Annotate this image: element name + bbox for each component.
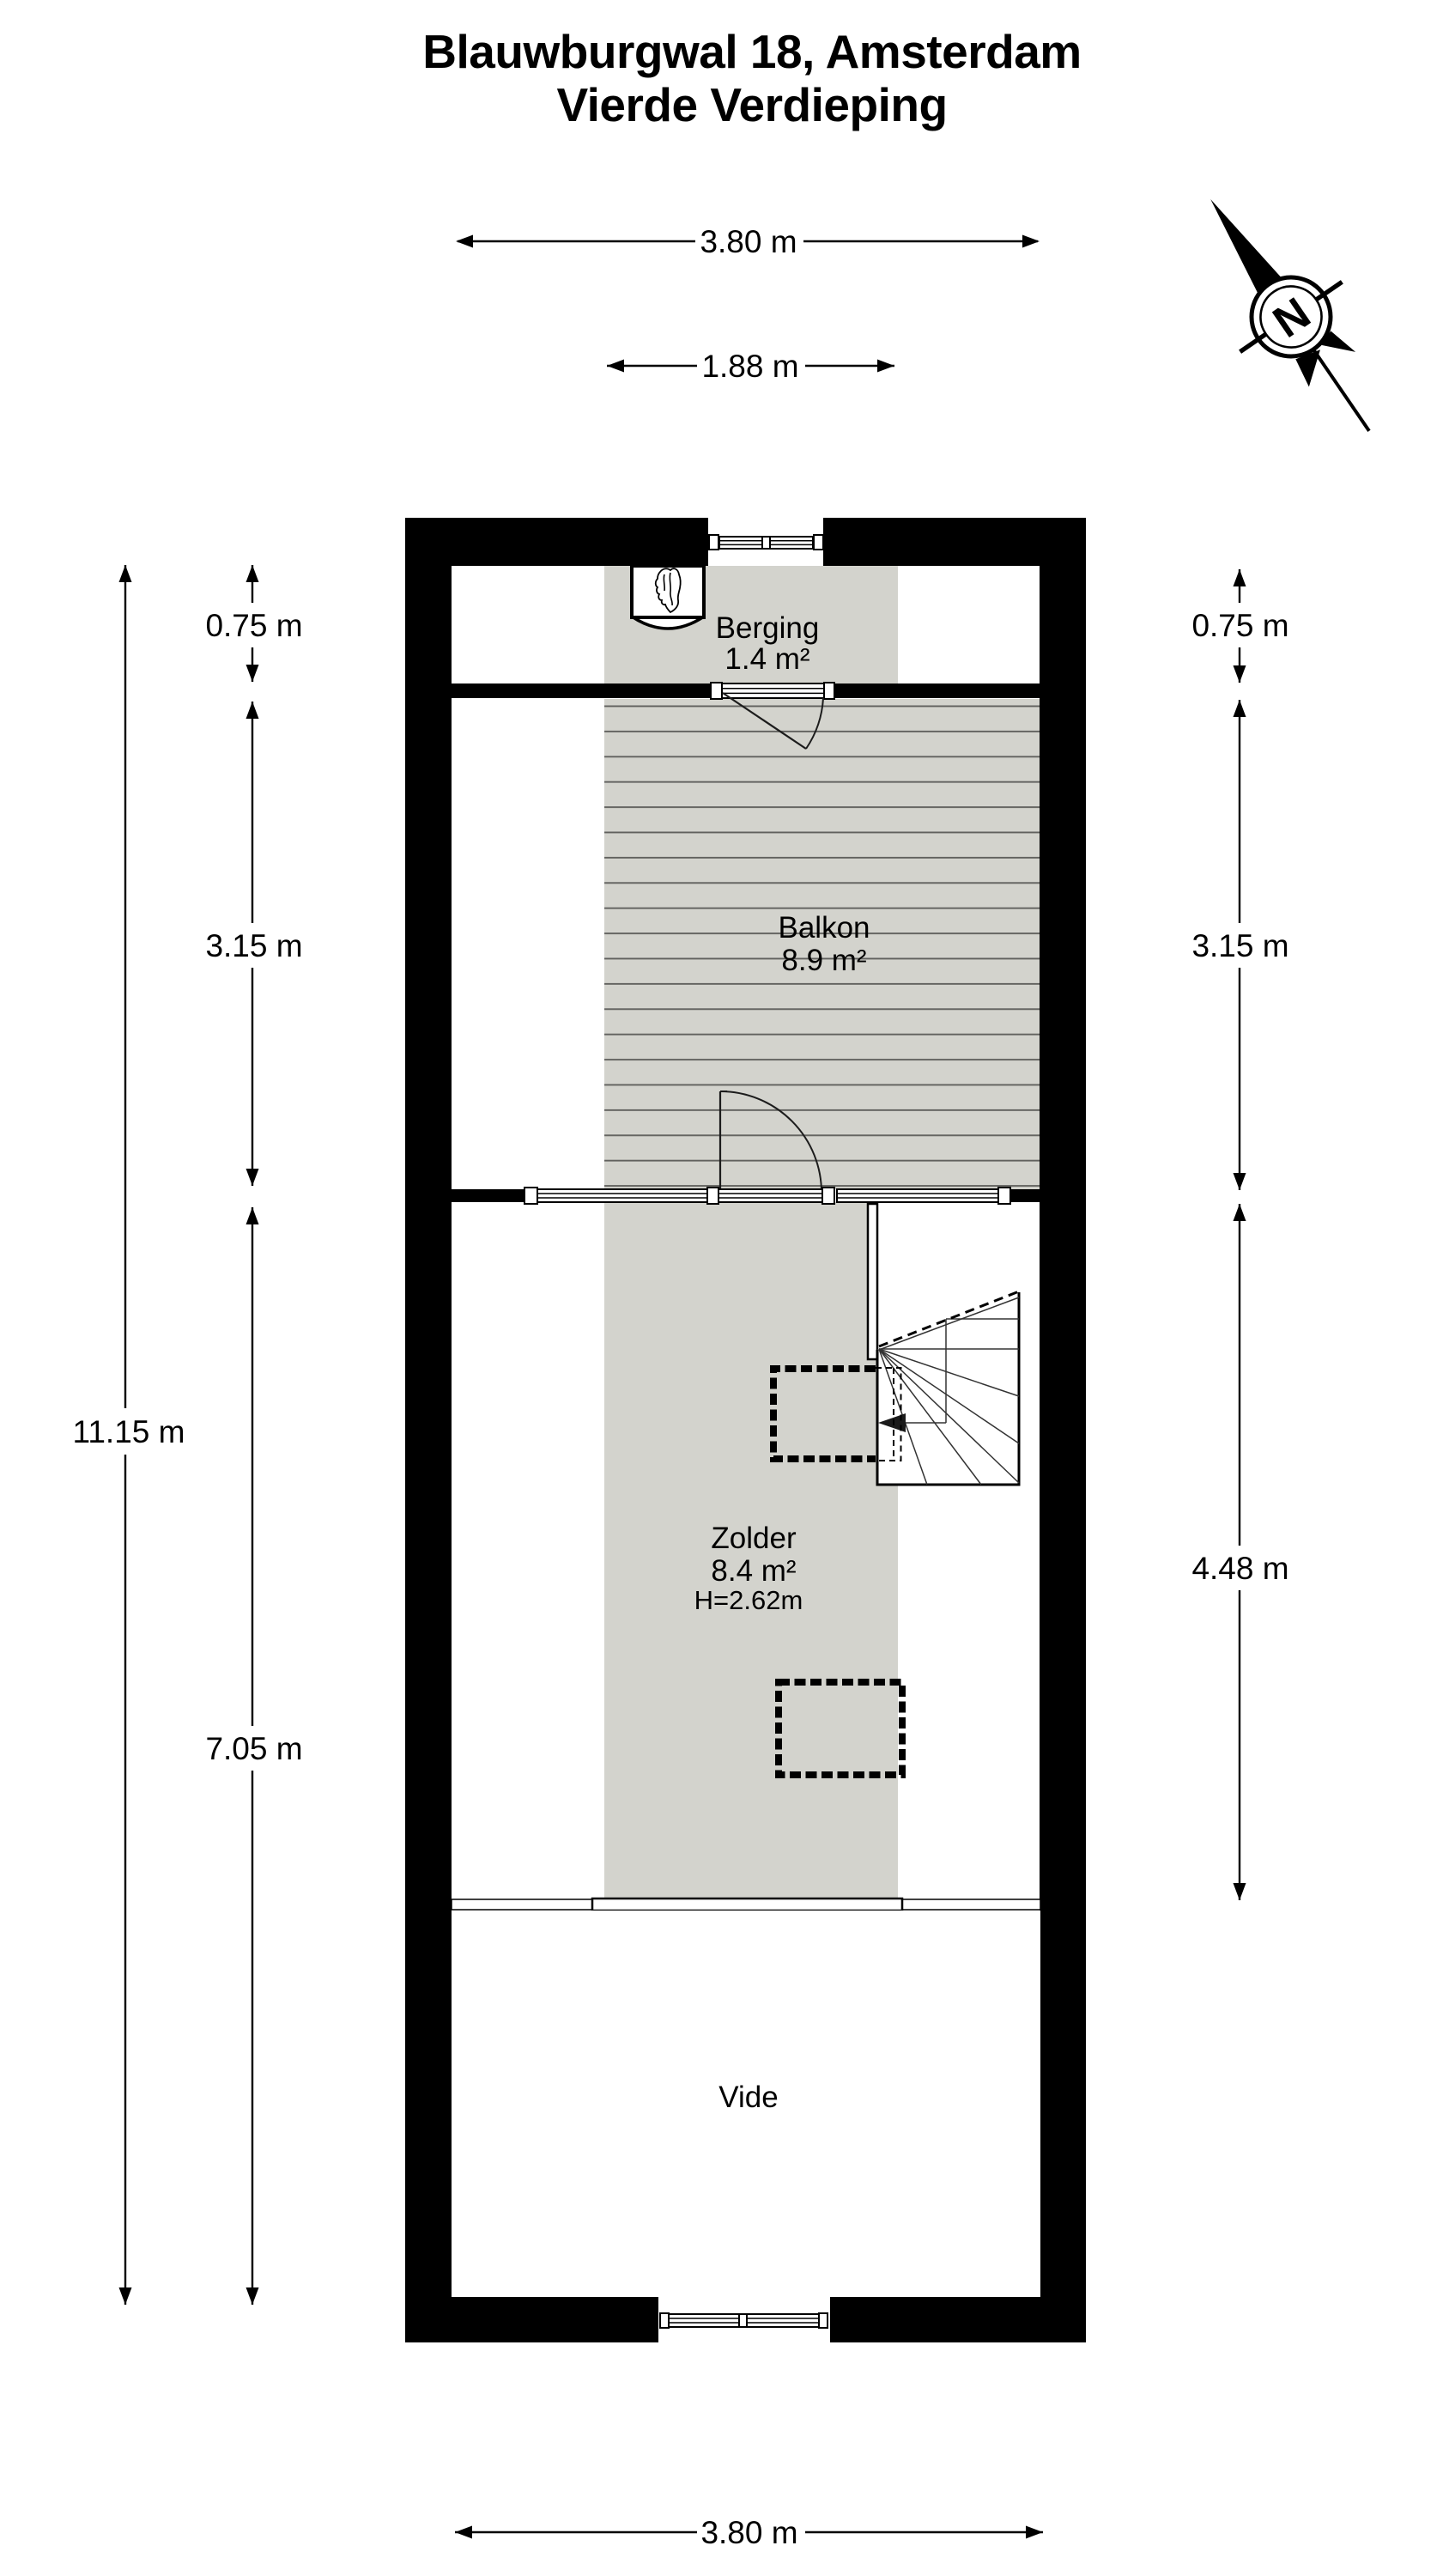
svg-text:0.75 m: 0.75 m	[1191, 608, 1288, 643]
svg-text:1.88 m: 1.88 m	[701, 349, 798, 384]
svg-text:0.75 m: 0.75 m	[205, 608, 302, 643]
svg-text:3.15 m: 3.15 m	[205, 928, 302, 963]
svg-text:3.80 m: 3.80 m	[700, 224, 797, 259]
svg-text:Vide: Vide	[718, 2081, 778, 2114]
svg-text:H=2.62m: H=2.62m	[694, 1585, 803, 1615]
svg-text:8.4 m²: 8.4 m²	[711, 1554, 796, 1588]
svg-text:Vierde Verdieping: Vierde Verdieping	[556, 78, 947, 131]
svg-text:11.15 m: 11.15 m	[73, 1414, 185, 1449]
svg-text:3.80 m: 3.80 m	[700, 2515, 797, 2550]
svg-text:8.9 m²: 8.9 m²	[781, 944, 866, 977]
svg-text:Blauwburgwal 18, Amsterdam: Blauwburgwal 18, Amsterdam	[422, 25, 1081, 78]
svg-text:Berging: Berging	[716, 611, 820, 645]
svg-text:7.05 m: 7.05 m	[205, 1731, 302, 1766]
svg-text:1.4 m²: 1.4 m²	[724, 642, 809, 676]
svg-text:4.48 m: 4.48 m	[1191, 1551, 1288, 1586]
svg-text:Balkon: Balkon	[778, 911, 870, 945]
svg-text:3.15 m: 3.15 m	[1191, 928, 1288, 963]
svg-text:Zolder: Zolder	[711, 1522, 797, 1555]
